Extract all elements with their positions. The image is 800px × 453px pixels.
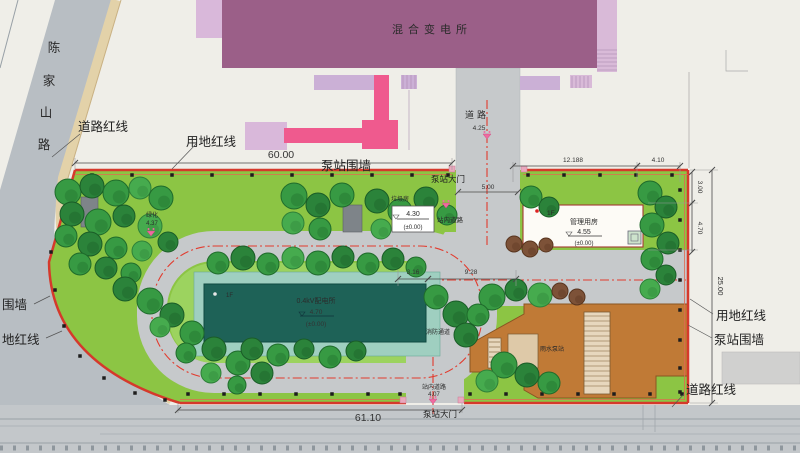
tree (241, 338, 263, 360)
tree (201, 363, 221, 383)
fence-post (370, 173, 374, 177)
fence-post (62, 324, 66, 328)
tree (105, 237, 127, 259)
greening-elev: 4.37 (146, 221, 158, 227)
tree (202, 337, 226, 361)
internal-road-label-top: 站内道路 (437, 215, 464, 224)
tree (231, 246, 255, 270)
shrub (569, 289, 585, 305)
tree (330, 183, 354, 207)
dim-right-a: 3.00 (696, 181, 703, 194)
fence-post (410, 173, 414, 177)
fence-post (468, 392, 472, 396)
tree (55, 225, 77, 247)
tree (80, 174, 104, 198)
fence-post (102, 376, 106, 380)
shrub (522, 241, 538, 257)
dim-right-b: 4.70 (696, 222, 703, 235)
tree (78, 232, 102, 256)
fence-post (678, 308, 682, 312)
wall-label-right: 泵站围墙 (714, 333, 764, 347)
stair-hatch (584, 312, 610, 394)
substation-label: 混合变电所 (392, 22, 472, 36)
tree (180, 321, 204, 345)
tree (306, 193, 330, 217)
fence-post (78, 354, 82, 358)
fence-post (170, 173, 174, 177)
dim-top-width: 60.00 (268, 149, 294, 161)
pump-station-site-plan: 陈 家 山 路 道路红线 用地红线 60.00 泵站围墙 混合变电所 道路 4.… (0, 0, 800, 453)
fence-post (53, 288, 57, 292)
fence-post (250, 173, 254, 177)
tree (69, 253, 91, 275)
floor-marker-dot (213, 292, 217, 296)
fire-lane-label: 消防通道 (426, 328, 450, 336)
fence-post (598, 173, 602, 177)
internal-road-label-bottom: 站内道路 (422, 383, 446, 391)
tree (640, 213, 664, 237)
tree (95, 257, 117, 279)
management-name: 管理用房 (570, 217, 598, 226)
tree (657, 232, 679, 254)
tree (319, 346, 341, 368)
tree (113, 277, 137, 301)
fence-post (294, 392, 298, 396)
fence-post (612, 392, 616, 396)
fence-post (504, 392, 508, 396)
fence-post (290, 173, 294, 177)
dim-plaza-b: 9.28 (465, 269, 478, 276)
fence-post (130, 173, 134, 177)
fence-post (258, 392, 262, 396)
tree (382, 248, 404, 270)
rain-pump-name: 雨水泵站 (540, 345, 564, 353)
tree (55, 179, 81, 205)
tree (294, 339, 314, 359)
internal-road-elev-bottom: 4.07 (428, 392, 440, 398)
fence-post (398, 392, 402, 396)
dim-plaza-a: 3.16 (407, 269, 420, 276)
floor-marker-dot (535, 209, 539, 213)
tree (176, 343, 196, 363)
fence-post (678, 188, 682, 192)
fence-post (648, 392, 652, 396)
tree (158, 232, 178, 252)
fence-post (163, 398, 167, 402)
dim-site-depth: 25.00 (716, 277, 725, 296)
tree (656, 265, 676, 285)
tree (538, 372, 560, 394)
tree (371, 219, 391, 239)
internal-road-datum-top: (±0.00) (404, 225, 423, 231)
trash-room-label: 垃圾房 (391, 195, 409, 203)
tree (640, 279, 660, 299)
dim-mgmt-b: 4.10 (652, 157, 665, 164)
road-name-char: 路 (38, 137, 51, 152)
tree (207, 252, 229, 274)
tree (528, 283, 552, 307)
management-elev: 4.55 (577, 229, 591, 236)
tree (137, 288, 163, 314)
shrub (506, 236, 522, 252)
road-name-char: 家 (43, 73, 56, 88)
bottom-road (0, 405, 800, 453)
shrub (539, 238, 553, 252)
fence-post (678, 366, 682, 370)
tree (129, 177, 151, 199)
tree (228, 376, 246, 394)
land-redline-label-top: 用地红线 (186, 134, 237, 149)
fence-post (210, 173, 214, 177)
tree (365, 189, 389, 213)
internal-road-elev-top: 4.30 (406, 211, 420, 218)
fence-post (186, 392, 190, 396)
road-name-char: 陈 (48, 40, 61, 55)
fence-post (576, 392, 580, 396)
fence-post (678, 218, 682, 222)
tree (113, 205, 135, 227)
fence-post (222, 392, 226, 396)
distribution-floor: 1F (226, 293, 233, 299)
road-redline-label-right: 道路红线 (686, 382, 737, 397)
tree (454, 323, 478, 347)
wall-label-left: 围墙 (2, 298, 27, 312)
site-plan-page: 陈 家 山 路 道路红线 用地红线 60.00 泵站围墙 混合变电所 道路 4.… (0, 0, 800, 453)
fence-post (678, 278, 682, 282)
tree (476, 370, 498, 392)
tree (467, 304, 489, 326)
wall-label-top: 泵站围墙 (321, 159, 371, 173)
fence-post (678, 338, 682, 342)
distribution-elev: 4.70 (310, 309, 323, 316)
dim-gate-top: 5.00 (482, 184, 495, 191)
tree (520, 186, 542, 208)
road-redline-label-topleft: 道路红线 (78, 119, 129, 134)
tree (346, 341, 366, 361)
tree (60, 202, 84, 226)
land-redline-label-left: 地红线 (2, 332, 40, 347)
dim-bottom-width: 61.10 (355, 412, 381, 424)
road-name-char: 山 (40, 106, 53, 120)
management-datum: (±0.00) (575, 241, 594, 247)
greening-label: 绿化 (146, 211, 158, 219)
tree (357, 253, 379, 275)
tree (267, 344, 289, 366)
fence-post (366, 392, 370, 396)
top-road-label: 道路 (465, 109, 489, 120)
tree (332, 246, 354, 268)
distribution-name: 0.4kV配电所 (297, 296, 336, 305)
tree (282, 212, 304, 234)
tree (149, 186, 173, 210)
tree (257, 253, 279, 275)
fence-post (526, 173, 530, 177)
land-redline-label-right: 用地红线 (716, 308, 767, 323)
tree (309, 218, 331, 240)
gate-label-bottom: 泵站大门 (423, 409, 457, 419)
tree (515, 363, 539, 387)
offsite-block (722, 352, 800, 384)
shrub (552, 283, 568, 299)
tree (281, 183, 307, 209)
top-road-elevation: 4.25 (473, 125, 486, 132)
tree (424, 285, 448, 309)
tree (306, 251, 330, 275)
distribution-datum: (±0.00) (306, 321, 327, 328)
tree (132, 241, 152, 261)
dim-mgmt-a: 12.188 (563, 157, 583, 164)
gate-label-top: 泵站大门 (431, 174, 465, 184)
tree (251, 362, 273, 384)
fence-post (562, 173, 566, 177)
tree (150, 317, 170, 337)
tree (85, 209, 111, 235)
tree (282, 247, 304, 269)
garden-structure (343, 205, 362, 232)
fence-post (133, 391, 137, 395)
fence-post (670, 173, 674, 177)
substation-stairs (597, 0, 617, 72)
fence-post (49, 250, 53, 254)
management-floor: 1F (547, 210, 555, 217)
fence-post (330, 173, 334, 177)
tree (103, 180, 129, 206)
fence-post (330, 392, 334, 396)
